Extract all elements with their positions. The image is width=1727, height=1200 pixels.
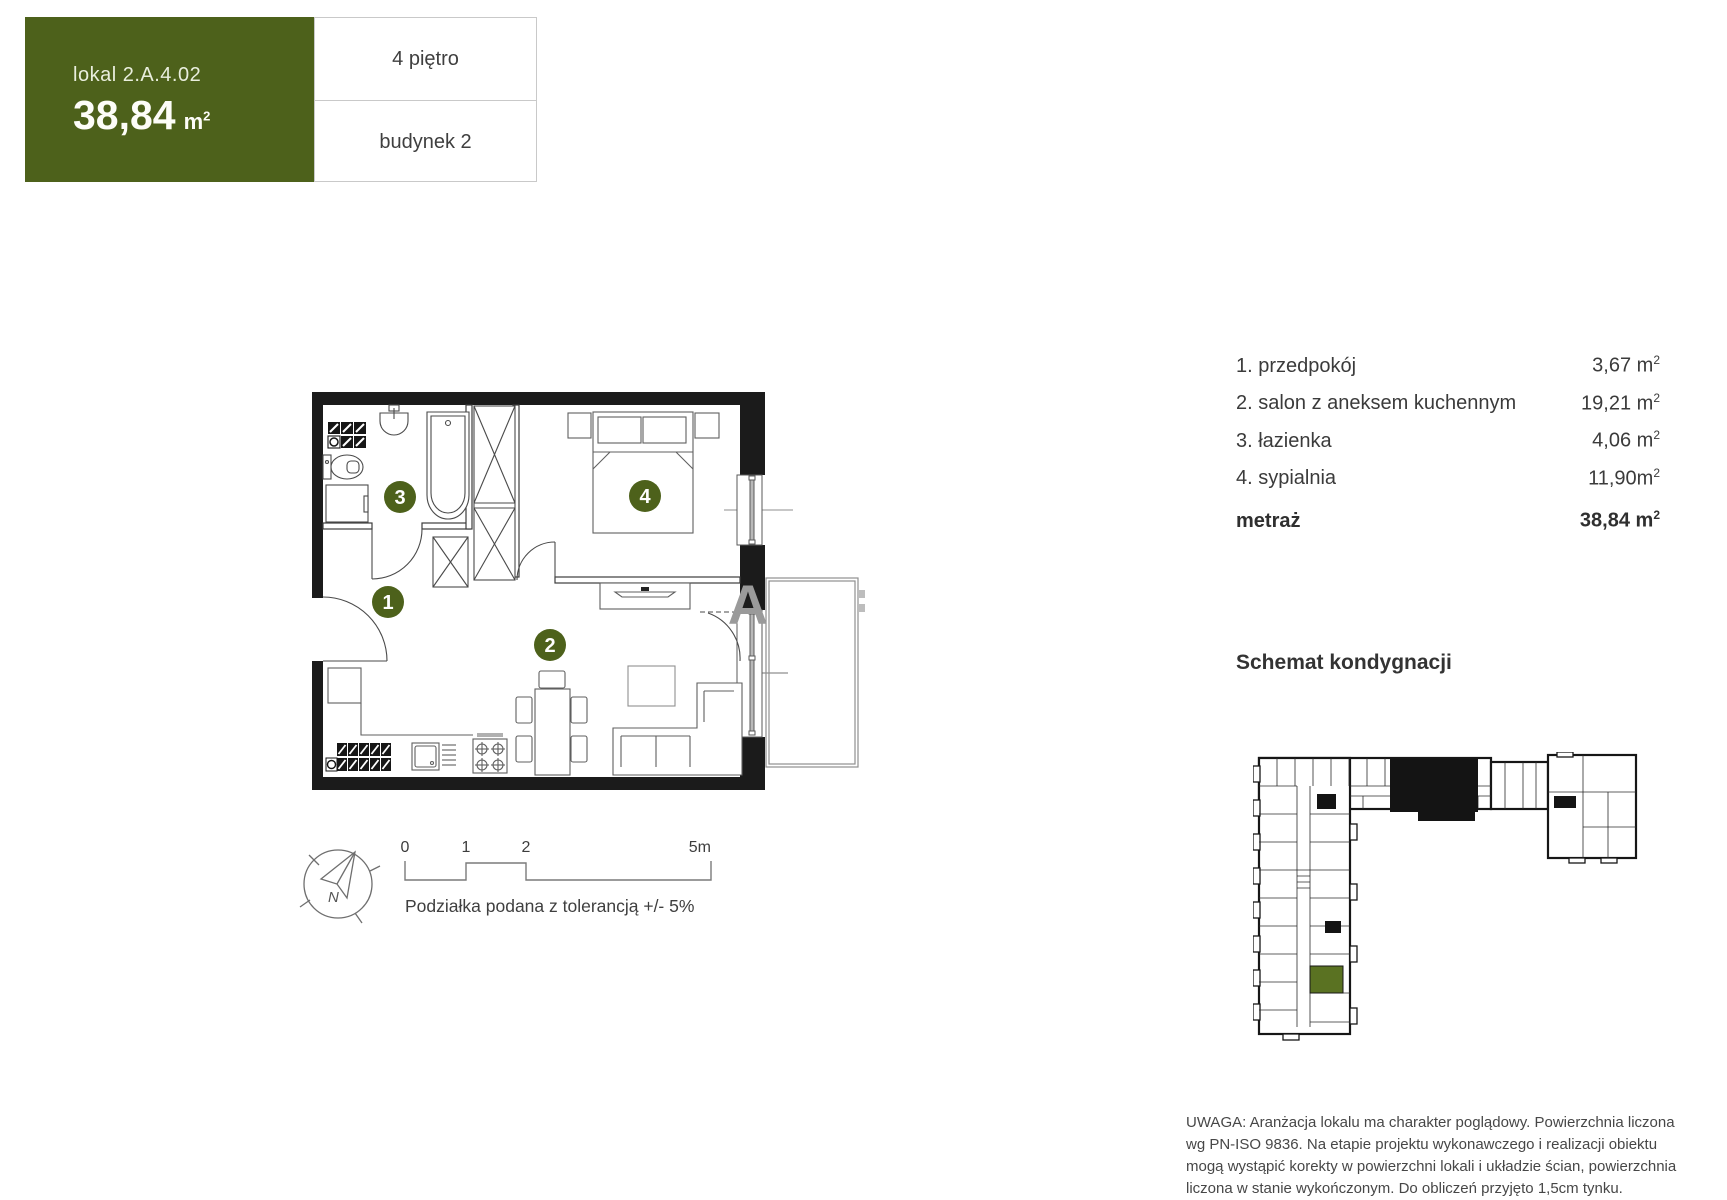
svg-text:2: 2 [522,839,531,856]
room-list: 1. przedpokój 3,67 m2 2. salon z aneksem… [1236,353,1660,546]
unit-info-box: 4 piętro budynek 2 [314,17,537,182]
toilet-icon [323,455,363,479]
bedroom-door-icon [517,542,555,580]
sofa-icon [613,683,742,775]
nightstand-icon [568,413,591,438]
washer-grid-icon [328,422,366,448]
room-row: 4. sypialnia 11,90m2 [1236,466,1660,504]
stove-icon [473,733,507,773]
disclaimer-line: wg PN-ISO 9836. Na etapie projektu wykon… [1186,1134,1691,1156]
watermark: A [728,573,865,636]
kitchen-cabinet-grid-icon [326,743,391,771]
scale-caption: Podziałka podana z tolerancją +/- 5% [405,896,694,917]
wardrobe-column-icon [474,406,515,580]
room-name: 2. salon z aneksem kuchennym [1236,392,1516,415]
fridge-icon [328,668,361,703]
bedroom-furniture [568,412,719,533]
tv-cabinet-icon [600,583,690,609]
svg-text:5m: 5m [689,839,711,856]
scalebar: 0 1 2 5m [401,839,711,880]
svg-text:0: 0 [401,839,410,856]
bathtub-icon [427,412,469,519]
scale-area: N 0 1 2 5m [298,838,728,933]
floor-cell: 4 piętro [315,18,536,101]
svg-text:4: 4 [639,486,651,508]
svg-text:N: N [328,889,339,906]
room-name: 3. łazienka [1236,430,1332,453]
disclaimer-line: UWAGA: Aranżacja lokalu ma charakter pog… [1186,1112,1691,1134]
room-badge-3: 3 [384,481,416,513]
bathroom-door-icon [372,529,422,579]
total-area: 38,84 m2 [1580,508,1660,533]
unit-area-unit: m2 [184,109,211,134]
dining-set-icon [516,671,587,775]
unit-area: 38,84m2 [73,95,314,136]
kitchen-sink-icon [412,743,456,770]
building-cell: budynek 2 [315,101,536,183]
counter-line [361,703,473,735]
coffee-table-icon [628,666,675,706]
room-name: 1. przedpokój [1236,355,1356,378]
bed-icon [593,412,693,533]
svg-text:A: A [728,573,768,636]
unit-header: lokal 2.A.4.02 38,84m2 [25,17,314,182]
disclaimer-line: mogą wystąpić korekty w powierzchni loka… [1186,1156,1691,1178]
disclaimer: UWAGA: Aranżacja lokalu ma charakter pog… [1186,1112,1691,1200]
room-badge-2: 2 [534,629,566,661]
room-area: 3,67 m2 [1592,353,1660,378]
room-area: 4,06 m2 [1592,428,1660,453]
room-name: 4. sypialnia [1236,467,1336,490]
room-row: 1. przedpokój 3,67 m2 [1236,353,1660,391]
svg-text:1: 1 [462,839,471,856]
unit-area-value: 38,84 [73,92,176,138]
disclaimer-line: liczona w stanie wykończonym. Do oblicze… [1186,1178,1691,1200]
floor-plan: A 1 2 3 4 [310,392,865,792]
room-badge-4: 4 [629,480,661,512]
compass-icon: N [300,850,380,923]
schematic-title: Schemat kondygnacji [1236,651,1452,675]
floorplan-card: lokal 2.A.4.02 38,84m2 4 piętro budynek … [0,0,1727,1200]
room-area: 11,90m2 [1588,466,1660,491]
total-label: metraż [1236,510,1300,533]
current-unit-highlight [1310,966,1343,993]
room-badge-1: 1 [372,586,404,618]
bathroom-cabinet-icon [326,485,368,522]
svg-text:3: 3 [394,487,405,509]
room-area: 19,21 m2 [1581,391,1660,416]
floor-schematic [1253,752,1643,1042]
room-row: 2. salon z aneksem kuchennym 19,21 m2 [1236,391,1660,429]
nightstand-icon [695,413,719,438]
kitchen [326,668,507,773]
total-area-row: metraż 38,84 m2 [1236,508,1660,546]
room-row: 3. łazienka 4,06 m2 [1236,428,1660,466]
svg-text:2: 2 [544,635,555,657]
sink-icon [380,405,408,435]
svg-text:1: 1 [382,592,393,614]
unit-label: lokal 2.A.4.02 [73,64,314,87]
hall-closet-icon [433,537,468,587]
